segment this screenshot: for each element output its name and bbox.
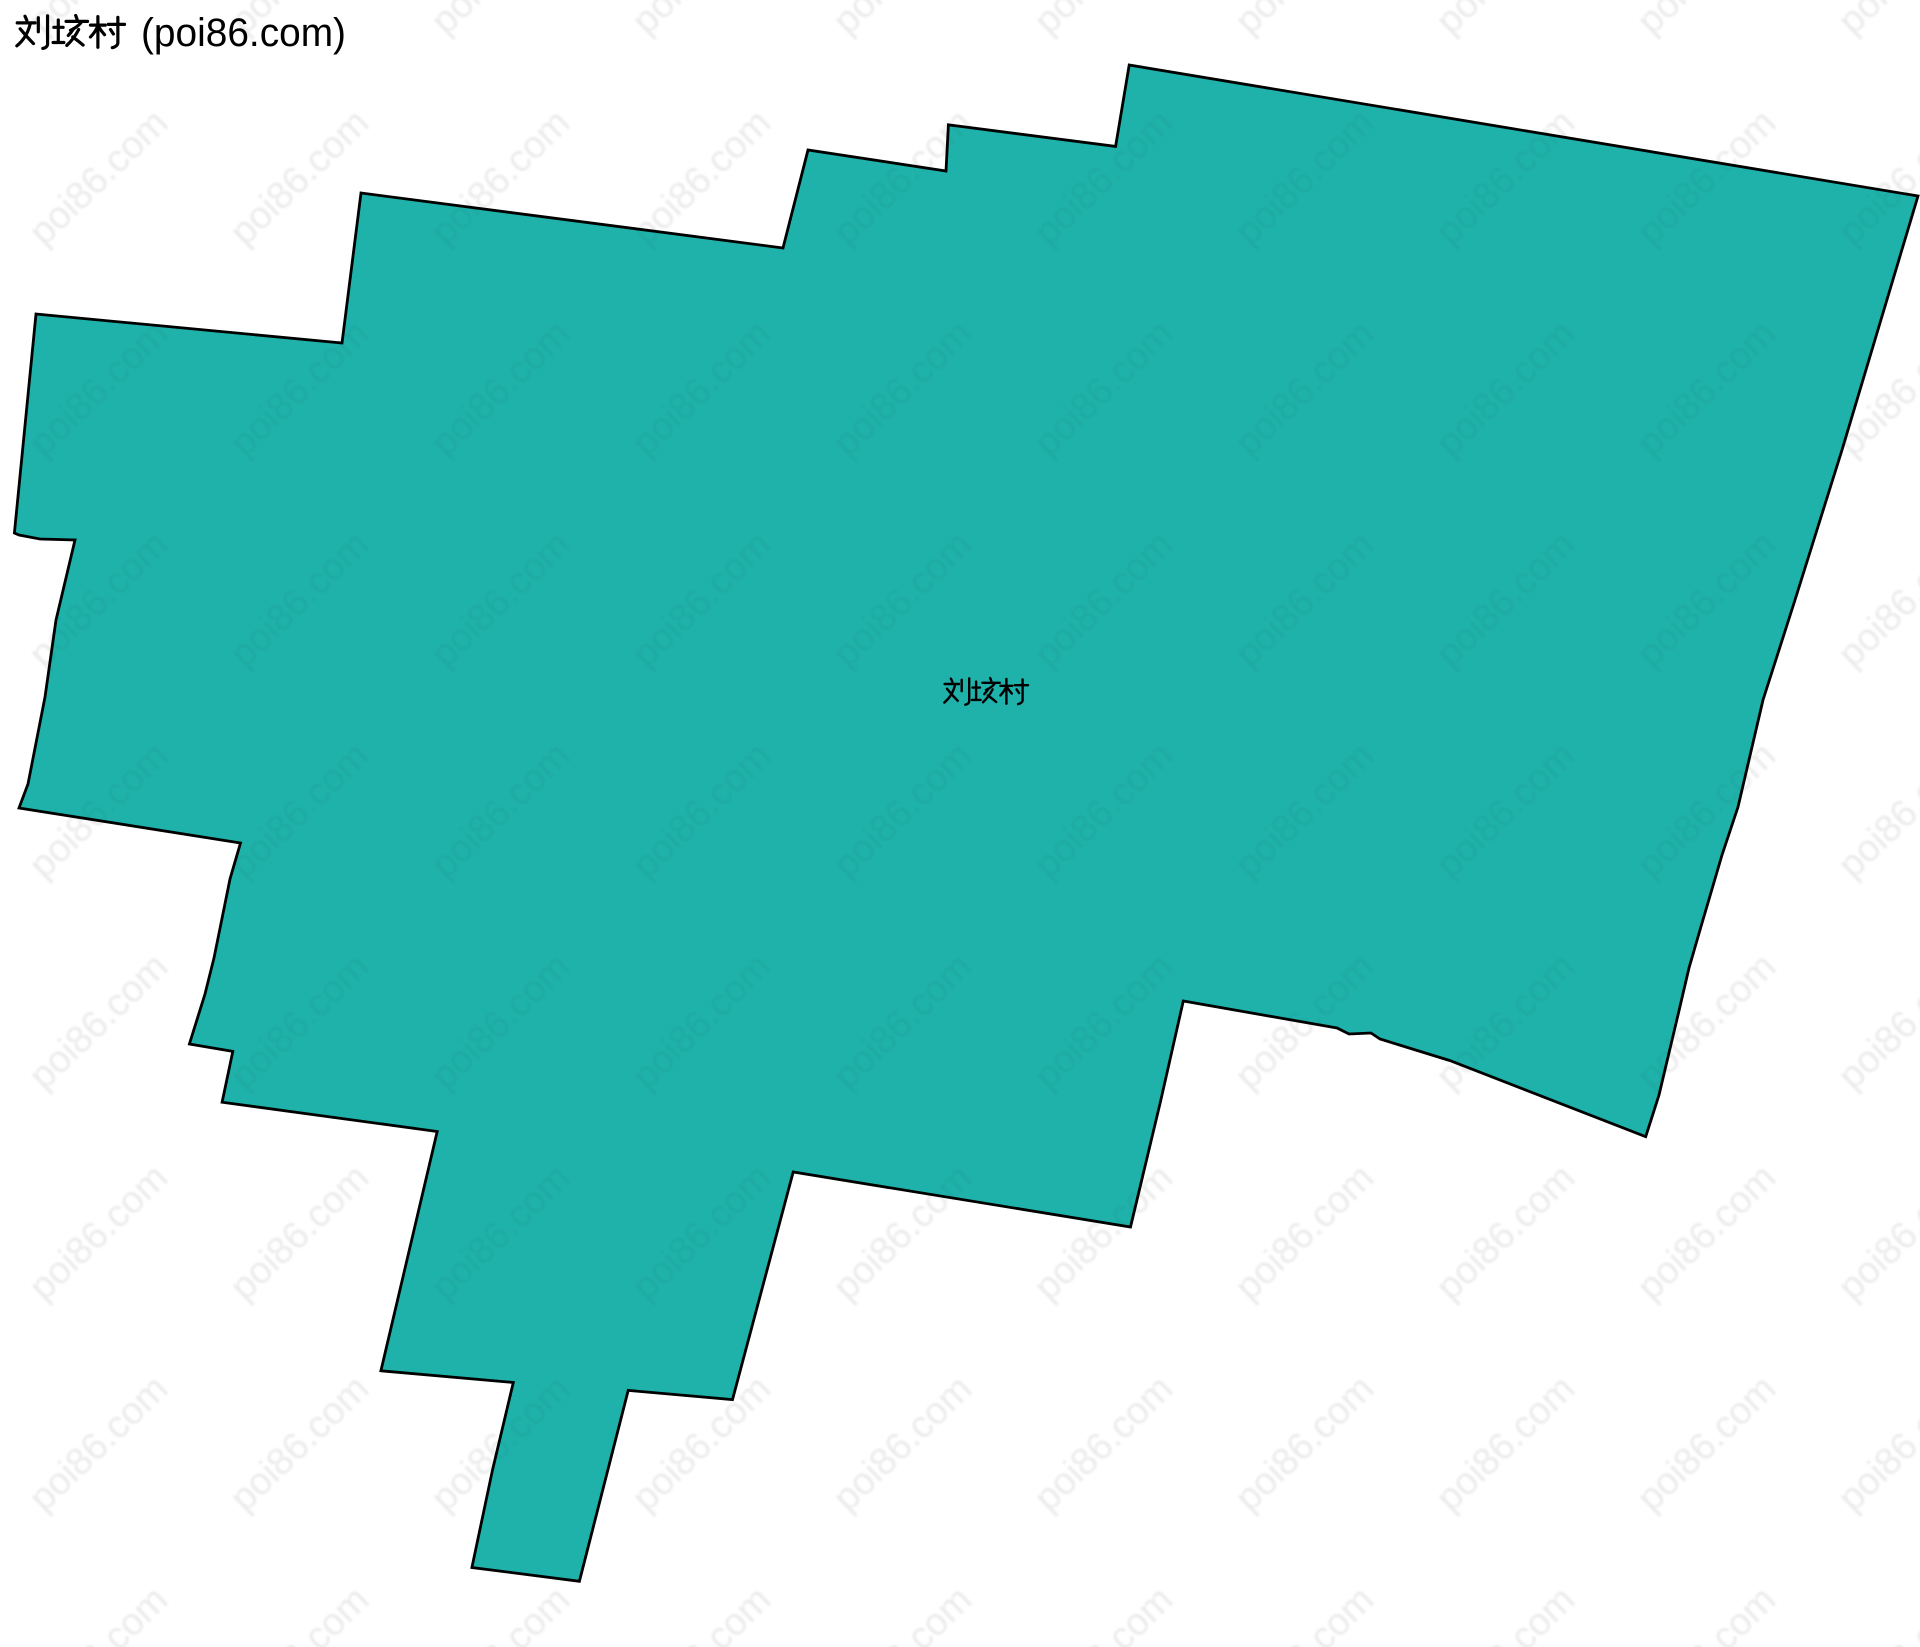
svg-text:(poi86.com): (poi86.com): [141, 11, 346, 55]
